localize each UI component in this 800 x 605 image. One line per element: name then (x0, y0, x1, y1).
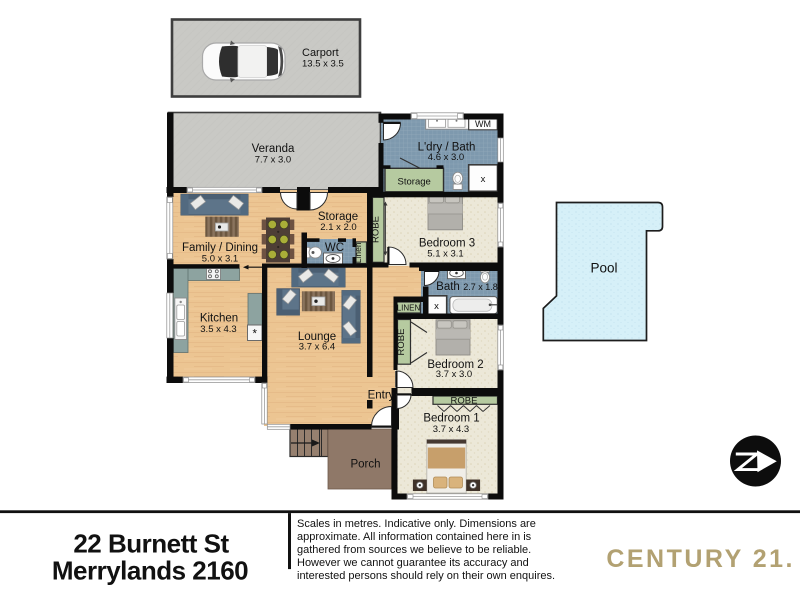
svg-text:2.1 x 2.0: 2.1 x 2.0 (320, 222, 356, 233)
svg-text:*: * (253, 329, 258, 341)
svg-text:Merrylands 2160: Merrylands 2160 (52, 556, 248, 586)
svg-text:LINEN: LINEN (397, 304, 421, 313)
svg-text:interested persons should rely: interested persons should rely on their … (297, 570, 555, 582)
svg-text:WM: WM (475, 119, 491, 129)
svg-text:22 Burnett St: 22 Burnett St (73, 529, 229, 559)
svg-text:Entry: Entry (368, 390, 395, 402)
svg-text:Pool: Pool (590, 261, 617, 276)
svg-text:x: x (481, 174, 486, 185)
svg-text:CENTURY 21.: CENTURY 21. (606, 545, 795, 573)
svg-text:ROBE: ROBE (396, 329, 407, 356)
svg-text:7.7 x 3.0: 7.7 x 3.0 (255, 155, 291, 166)
svg-text:x: x (434, 301, 439, 312)
svg-text:5.0 x 3.1: 5.0 x 3.1 (202, 254, 238, 265)
svg-text:approximate. All information c: approximate. All information contained h… (297, 531, 532, 543)
svg-text:3.7 x 4.3: 3.7 x 4.3 (433, 424, 469, 435)
svg-text:3.7 x 3.0: 3.7 x 3.0 (436, 369, 472, 380)
svg-text:4.6 x 3.0: 4.6 x 3.0 (428, 152, 464, 163)
svg-text:Scales in metres. Indicative o: Scales in metres. Indicative only. Dimen… (297, 518, 536, 530)
svg-text:Carport: Carport (302, 47, 339, 59)
svg-text:Bedroom 1: Bedroom 1 (423, 413, 479, 425)
svg-text:However we cannot guarantee it: However we cannot guarantee its accuracy… (297, 557, 529, 569)
svg-text:Storage: Storage (398, 177, 431, 188)
svg-text:5.1 x 3.1: 5.1 x 3.1 (427, 249, 463, 260)
svg-text:WC: WC (325, 242, 344, 254)
svg-text:3.7 x 6.4: 3.7 x 6.4 (299, 342, 335, 353)
svg-text:Porch: Porch (350, 459, 380, 471)
svg-text:gathered from sources we belie: gathered from sources we believe to be r… (297, 544, 531, 556)
svg-text:3.5 x 4.3: 3.5 x 4.3 (200, 324, 236, 335)
svg-text:13.5 x 3.5: 13.5 x 3.5 (302, 59, 344, 70)
svg-text:2.7 x 1.8: 2.7 x 1.8 (463, 282, 498, 292)
svg-text:Kitchen: Kitchen (200, 313, 238, 325)
svg-text:Bath: Bath (436, 281, 460, 293)
svg-text:Veranda: Veranda (252, 143, 295, 155)
svg-text:Family / Dining: Family / Dining (182, 242, 258, 254)
svg-text:ROBE: ROBE (451, 395, 478, 406)
